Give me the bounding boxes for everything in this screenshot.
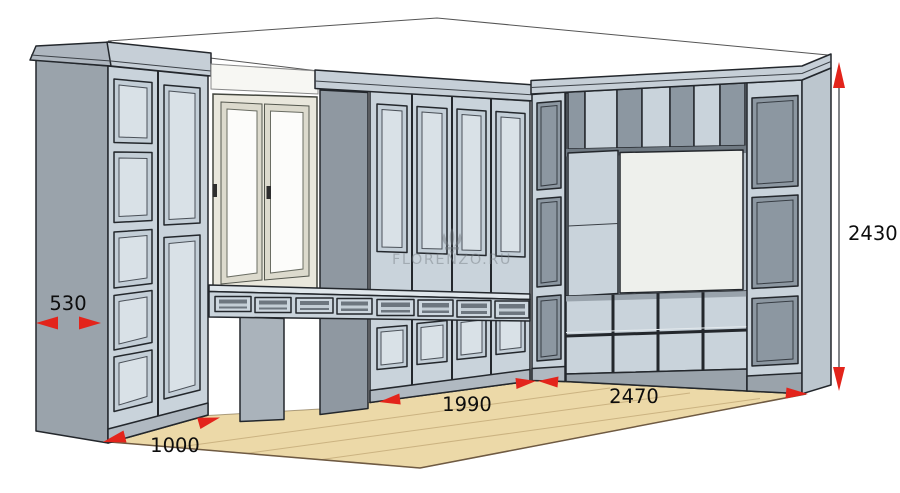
drawer-bar	[341, 306, 368, 309]
dimension-label: 1990	[442, 393, 492, 416]
bottom-cubbies	[566, 291, 747, 374]
drawer-bar	[219, 304, 247, 307]
ceiling-edge-line	[108, 18, 828, 55]
drawing-canvas: FLORENZO.RU 530 1000 1990 2470 2430	[0, 0, 900, 493]
wardrobe-side-panel	[320, 90, 368, 415]
right-side-panel	[802, 68, 831, 394]
desk-support-panel	[240, 317, 284, 422]
tv-wall-unit	[566, 83, 747, 392]
window-glass-right	[271, 111, 304, 273]
dimension-label: 530	[49, 292, 86, 315]
dimension-label: 2430	[848, 222, 898, 245]
cubby-cell	[670, 86, 694, 147]
arrow-down-icon	[833, 367, 845, 391]
door-panel-inset	[421, 325, 443, 360]
cubby-cell	[617, 88, 642, 148]
door-panel	[752, 296, 798, 366]
door-panel-inset	[119, 357, 147, 406]
watermark-text: FLORENZO.RU	[392, 252, 512, 268]
dimension-label: 1000	[150, 434, 200, 457]
door-panel-inset	[119, 158, 147, 217]
drawer-bar	[422, 308, 449, 311]
door-panel-inset	[119, 236, 147, 283]
dimension-label: 2470	[609, 385, 659, 408]
left-wardrobe	[30, 42, 211, 443]
door-panel	[752, 195, 798, 289]
door-panel-inset	[461, 320, 482, 355]
door-panel-inset	[501, 117, 520, 252]
door-panel-inset	[382, 110, 402, 248]
drawer-bar	[499, 309, 525, 312]
arrow-up-icon	[833, 62, 845, 88]
window-valance	[211, 64, 318, 94]
room-ceiling-outline	[108, 18, 828, 71]
drawer-bar	[461, 308, 487, 311]
door-panel-inset	[119, 85, 147, 138]
drawer-bar	[259, 305, 287, 308]
cubby-cell	[720, 83, 745, 146]
door-panel-inset	[169, 241, 195, 393]
furniture-technical-drawing: FLORENZO.RU 530 1000 1990 2470 2430	[0, 0, 900, 493]
corner-cabinet	[532, 92, 565, 382]
cubby-cell	[585, 90, 617, 149]
dimension-2430: 2430	[833, 62, 898, 391]
window	[211, 64, 318, 297]
window-glass-left	[227, 109, 257, 277]
door-panel-inset	[462, 115, 481, 251]
window-handle-icon	[213, 184, 218, 197]
door-panel-inset	[381, 330, 403, 365]
door-panel-inset	[169, 91, 195, 220]
door-panel	[752, 96, 798, 189]
drawer-bar	[381, 307, 410, 310]
top-cubbies	[568, 83, 745, 149]
left-wardrobe-side-panel	[36, 60, 108, 443]
cubby-cell	[642, 87, 670, 148]
door-panel-inset	[422, 112, 442, 249]
door-panel-inset	[119, 297, 147, 344]
left-wall-wardrobe	[315, 70, 535, 415]
cubby-cell	[568, 91, 585, 149]
tv-niche	[620, 150, 743, 293]
window-handle-icon	[267, 186, 272, 199]
drawer-bar	[300, 305, 329, 308]
cubby-cell	[694, 84, 720, 146]
